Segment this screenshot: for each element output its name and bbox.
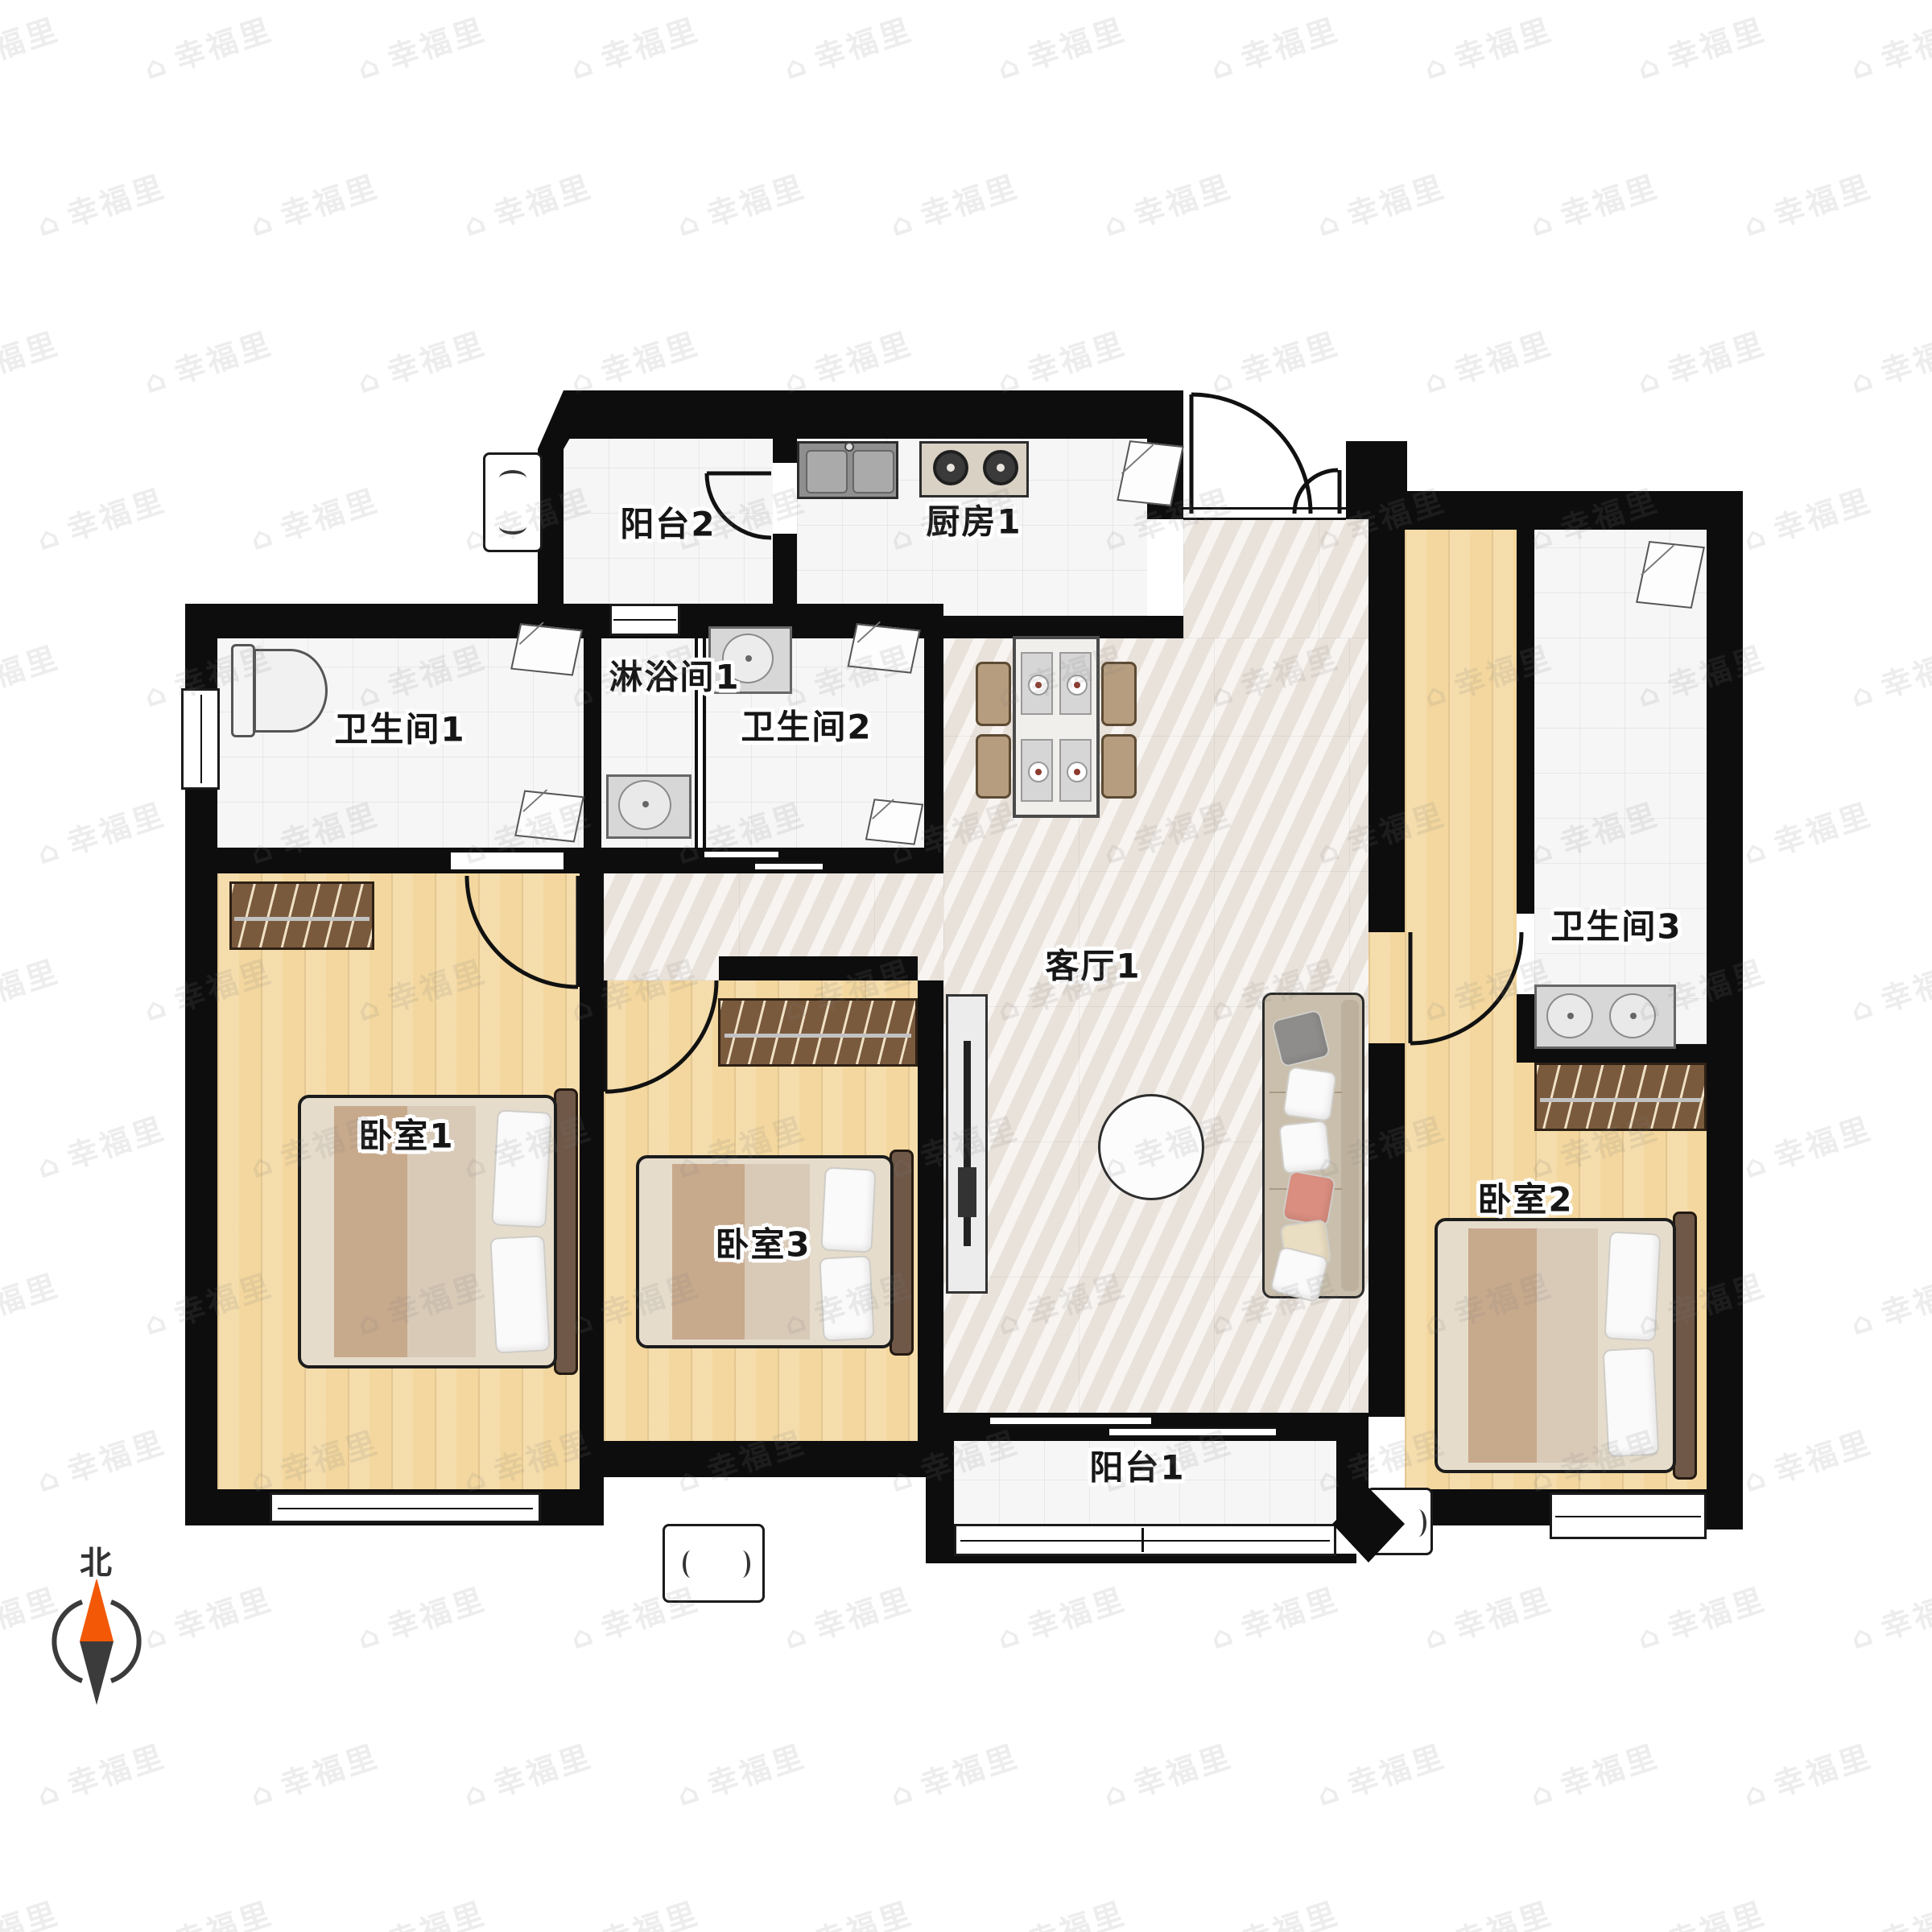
watermark: ⌂幸福里 xyxy=(778,1889,919,1932)
sink-bowl-right xyxy=(852,450,894,493)
watermark: ⌂幸福里 xyxy=(1844,1575,1932,1658)
watermark: ⌂幸福里 xyxy=(671,162,811,246)
watermark: ⌂幸福里 xyxy=(1631,5,1772,89)
dining-chair-4 xyxy=(1101,734,1137,799)
bathroom2-fixture-bottom xyxy=(865,799,924,845)
house-icon: ⌂ xyxy=(993,47,1026,86)
room-label-balcony-2: 阳台2 xyxy=(620,497,716,547)
watermark: ⌂幸福里 xyxy=(671,1732,811,1815)
window-divider xyxy=(1141,1528,1144,1553)
watermark: ⌂幸福里 xyxy=(1844,1261,1932,1344)
watermark: ⌂幸福里 xyxy=(0,1261,64,1344)
watermark: ⌂幸福里 xyxy=(1524,162,1665,246)
bed-pillow xyxy=(819,1255,874,1341)
house-icon: ⌂ xyxy=(460,1774,493,1813)
window-mullion xyxy=(200,695,202,783)
blanket-band xyxy=(1537,1228,1598,1462)
house-icon: ⌂ xyxy=(33,518,66,557)
fixture-line xyxy=(872,799,919,845)
wall-entry-right xyxy=(1346,441,1407,519)
house-icon: ⌂ xyxy=(353,361,386,400)
compass-ring-left xyxy=(54,1602,82,1681)
plate-center xyxy=(1074,682,1080,688)
bed-pillow xyxy=(1604,1231,1662,1341)
house-icon: ⌂ xyxy=(673,1774,706,1813)
watermark: ⌂幸福里 xyxy=(1204,5,1345,89)
house-icon: ⌂ xyxy=(33,832,66,871)
house-icon: ⌂ xyxy=(1740,518,1773,557)
door-gap-bathroom3 xyxy=(1517,914,1534,994)
fixture-line xyxy=(1641,545,1702,605)
fixture-line xyxy=(523,789,578,843)
house-icon: ⌂ xyxy=(1740,1774,1773,1813)
room-label-kitchen-1: 厨房1 xyxy=(926,495,1022,544)
headboard-bedroom2 xyxy=(1673,1212,1697,1480)
house-icon: ⌂ xyxy=(246,1774,279,1813)
vanity-drain-right xyxy=(1630,1013,1637,1019)
house-icon: ⌂ xyxy=(886,204,919,243)
watermark: ⌂幸福里 xyxy=(1418,5,1558,89)
stove-burner-right xyxy=(983,450,1018,485)
house-icon: ⌂ xyxy=(140,989,173,1028)
dining-chair-3 xyxy=(1101,662,1137,726)
watermark: ⌂幸福里 xyxy=(138,319,279,402)
ac-unit-bottom-right xyxy=(1366,1488,1433,1555)
sofa xyxy=(1262,993,1364,1298)
house-icon: ⌂ xyxy=(353,1617,386,1656)
wall-top xyxy=(563,390,1183,439)
watermark: ⌂幸福里 xyxy=(351,1889,492,1932)
watermark: ⌂幸福里 xyxy=(1311,162,1451,246)
watermark: ⌂幸福里 xyxy=(0,5,64,89)
wall-living-bedroom2-lower xyxy=(1368,1043,1405,1417)
watermark: ⌂幸福里 xyxy=(457,162,598,246)
house-icon: ⌂ xyxy=(140,361,173,400)
wall-bedroom3-top xyxy=(719,956,918,980)
compass-ring-right xyxy=(111,1602,139,1681)
watermark: ⌂幸福里 xyxy=(1844,1889,1932,1932)
floor-bedroom-2-doorway xyxy=(1368,932,1405,1043)
dining-chair-2 xyxy=(976,734,1011,799)
house-icon: ⌂ xyxy=(460,204,493,243)
basin-drain xyxy=(642,801,649,807)
house-icon: ⌂ xyxy=(1847,1617,1880,1656)
house-icon: ⌂ xyxy=(1100,1774,1133,1813)
house-icon: ⌂ xyxy=(1740,1460,1773,1499)
balcony1-slider-b xyxy=(1109,1426,1276,1438)
window-bedroom2-bottom xyxy=(1550,1492,1707,1539)
watermark: ⌂幸福里 xyxy=(1204,319,1345,402)
wall-balcony1-right xyxy=(1336,1413,1368,1525)
house-icon: ⌂ xyxy=(246,518,279,557)
watermark: ⌂幸福里 xyxy=(991,5,1132,89)
dining-table xyxy=(1013,636,1100,818)
watermark: ⌂幸福里 xyxy=(0,1889,64,1932)
round-rug xyxy=(1098,1094,1204,1200)
house-icon: ⌂ xyxy=(1207,361,1240,400)
sofa-pillow-white xyxy=(1282,1066,1337,1122)
watermark: ⌂幸福里 xyxy=(564,319,705,402)
bathroom1-fixture-top xyxy=(510,623,583,675)
house-icon: ⌂ xyxy=(1633,47,1666,86)
place-setting xyxy=(1021,739,1053,802)
watermark: ⌂幸福里 xyxy=(1418,1575,1558,1658)
window-mullion xyxy=(278,1508,534,1509)
window-bedroom1-bottom xyxy=(270,1492,541,1523)
tray-drain xyxy=(745,655,752,662)
burner-center xyxy=(997,464,1005,472)
watermark: ⌂幸福里 xyxy=(1418,319,1558,402)
house-icon: ⌂ xyxy=(1207,47,1240,86)
watermark: ⌂幸福里 xyxy=(1097,162,1238,246)
watermark: ⌂幸福里 xyxy=(244,476,385,559)
door-gap-balcony2 xyxy=(773,463,797,534)
window-bathroom1-left xyxy=(181,688,220,790)
watermark: ⌂幸福里 xyxy=(564,1889,705,1932)
place-setting xyxy=(1059,739,1092,802)
house-icon: ⌂ xyxy=(33,1774,66,1813)
house-icon: ⌂ xyxy=(1633,1617,1666,1656)
wall-bathroom1-right xyxy=(584,620,601,848)
house-icon: ⌂ xyxy=(1847,675,1880,714)
floor-plan-canvas: 阳台2 厨房1 卫生间1 淋浴间1 卫生间2 客厅1 卫生间3 卧室1 卧室3 … xyxy=(0,0,1932,1932)
fixture-line xyxy=(857,621,913,676)
room-label-bathroom-2: 卫生间2 xyxy=(741,700,872,749)
house-icon: ⌂ xyxy=(33,1460,66,1499)
room-label-bedroom-2: 卧室2 xyxy=(1477,1173,1573,1222)
ac-bracket xyxy=(1410,1509,1426,1537)
watermark: ⌂幸福里 xyxy=(1737,476,1878,559)
watermark: ⌂幸福里 xyxy=(0,947,64,1030)
watermark: ⌂幸福里 xyxy=(1844,633,1932,716)
house-icon: ⌂ xyxy=(246,204,279,243)
kitchen-stove xyxy=(919,441,1029,497)
wall-living-bedroom2-upper xyxy=(1368,519,1405,932)
window-balcony1-bottom xyxy=(954,1524,1336,1556)
wall-bedroom1-right xyxy=(580,848,604,1525)
watermark: ⌂幸福里 xyxy=(351,5,492,89)
house-icon: ⌂ xyxy=(1740,1146,1773,1185)
plate-center xyxy=(1035,769,1042,775)
house-icon: ⌂ xyxy=(1847,361,1880,400)
house-icon: ⌂ xyxy=(1847,47,1880,86)
watermark: ⌂幸福里 xyxy=(457,1732,598,1815)
house-icon: ⌂ xyxy=(1847,1303,1880,1342)
wardrobe-bedroom3 xyxy=(718,998,918,1067)
bed-pillow xyxy=(820,1166,876,1253)
room-label-balcony-1: 阳台1 xyxy=(1089,1441,1185,1490)
room-label-bedroom-3: 卧室3 xyxy=(715,1218,811,1267)
wardrobe-rod xyxy=(1540,1098,1701,1102)
wardrobe-bedroom2 xyxy=(1534,1063,1707,1131)
watermark: ⌂幸福里 xyxy=(1844,5,1932,89)
wall-bathroom2-right xyxy=(924,620,943,873)
sofa-back xyxy=(1341,1000,1359,1291)
toilet-tank xyxy=(231,644,255,737)
house-icon: ⌂ xyxy=(140,1617,173,1656)
sofa-pillow-red xyxy=(1282,1170,1336,1227)
tv-mount xyxy=(958,1167,976,1217)
sink-faucet xyxy=(844,442,854,452)
watermark: ⌂幸福里 xyxy=(884,1732,1025,1815)
watermark: ⌂幸福里 xyxy=(138,5,279,89)
bathroom3-vanity xyxy=(1534,985,1676,1049)
room-label-bathroom-3: 卫生间3 xyxy=(1550,900,1682,949)
wall-bedroom2-top xyxy=(1405,491,1743,530)
room-label-living-1: 客厅1 xyxy=(1045,939,1141,989)
house-icon: ⌂ xyxy=(1207,1617,1240,1656)
house-icon: ⌂ xyxy=(567,1617,600,1656)
bed-pillow xyxy=(1603,1347,1660,1457)
house-icon: ⌂ xyxy=(1420,47,1453,86)
bed-pillow xyxy=(491,1109,551,1228)
watermark: ⌂幸福里 xyxy=(244,162,385,246)
house-icon: ⌂ xyxy=(140,47,173,86)
wall-bathroom3-left-lower xyxy=(1517,994,1534,1044)
watermark: ⌂幸福里 xyxy=(1631,1575,1772,1658)
place-setting xyxy=(1059,652,1092,715)
watermark: ⌂幸福里 xyxy=(1204,1889,1345,1932)
watermark: ⌂幸福里 xyxy=(1418,1889,1558,1932)
house-icon: ⌂ xyxy=(1847,989,1880,1028)
window-mullion xyxy=(1555,1516,1701,1517)
stove-burner-left xyxy=(933,450,968,485)
cabinet-line xyxy=(1121,444,1181,502)
balcony1-slider-a xyxy=(990,1415,1151,1426)
watermark: ⌂幸福里 xyxy=(138,1575,279,1658)
shower1-door-sill xyxy=(704,849,778,860)
floor-entry xyxy=(1183,519,1368,638)
house-icon: ⌂ xyxy=(993,1617,1026,1656)
house-icon: ⌂ xyxy=(1633,361,1666,400)
ac-bracket xyxy=(499,470,526,486)
house-icon: ⌂ xyxy=(353,47,386,86)
house-icon: ⌂ xyxy=(886,1774,919,1813)
ac-unit-bottom-center xyxy=(663,1524,765,1603)
compass-needle-south xyxy=(80,1641,114,1705)
watermark: ⌂幸福里 xyxy=(991,1889,1132,1932)
sink-bowl-left xyxy=(806,450,848,493)
dining-chair-1 xyxy=(976,662,1011,726)
window-mullion xyxy=(960,1540,1331,1542)
entry-door-sill xyxy=(1183,507,1346,520)
ac-bracket xyxy=(1380,1509,1396,1537)
fixture-line xyxy=(519,622,575,678)
ac-unit-top-left xyxy=(483,452,543,552)
watermark: ⌂幸福里 xyxy=(778,5,919,89)
house-icon: ⌂ xyxy=(140,1303,173,1342)
house-icon: ⌂ xyxy=(567,47,600,86)
house-icon: ⌂ xyxy=(780,1617,813,1656)
room-label-bathroom-1: 卫生间1 xyxy=(334,703,465,752)
house-icon: ⌂ xyxy=(673,204,706,243)
watermark: ⌂幸福里 xyxy=(778,1575,919,1658)
watermark: ⌂幸福里 xyxy=(138,1889,279,1932)
kitchen-sink xyxy=(797,441,898,499)
wardrobe-rod xyxy=(234,917,369,921)
house-icon: ⌂ xyxy=(1420,361,1453,400)
bed-pillow xyxy=(489,1235,550,1353)
compass-north-label: 北 xyxy=(80,1537,114,1583)
wardrobe-bedroom1 xyxy=(229,881,374,950)
watermark: ⌂幸福里 xyxy=(1737,1418,1878,1501)
wall-bedroom3-right xyxy=(918,980,943,1441)
house-icon: ⌂ xyxy=(1740,832,1773,871)
wardrobe-rod xyxy=(724,1034,911,1038)
watermark: ⌂幸福里 xyxy=(1097,1732,1238,1815)
watermark: ⌂幸福里 xyxy=(31,1418,171,1501)
house-icon: ⌂ xyxy=(140,675,173,714)
watermark: ⌂幸福里 xyxy=(31,790,171,873)
shower1-washbasin xyxy=(606,774,691,839)
door-entry-large xyxy=(1191,394,1311,514)
house-icon: ⌂ xyxy=(1740,204,1773,243)
ac-bracket xyxy=(499,518,526,535)
toilet-bowl xyxy=(254,649,328,733)
watermark: ⌂幸福里 xyxy=(1631,319,1772,402)
watermark: ⌂幸福里 xyxy=(0,1575,64,1658)
watermark: ⌂幸福里 xyxy=(991,1575,1132,1658)
bathroom2-fixture-top xyxy=(847,623,920,673)
watermark: ⌂幸福里 xyxy=(1844,319,1932,402)
compass xyxy=(54,1578,138,1705)
watermark: ⌂幸福里 xyxy=(0,319,64,402)
watermark: ⌂幸福里 xyxy=(351,1575,492,1658)
plate-center xyxy=(1074,769,1080,775)
headboard-bedroom1 xyxy=(554,1088,578,1375)
watermark: ⌂幸福里 xyxy=(1311,1732,1451,1815)
bathroom1-fixture-bottom xyxy=(514,791,584,843)
watermark: ⌂幸福里 xyxy=(244,1732,385,1815)
place-setting xyxy=(1021,652,1053,715)
burner-center xyxy=(947,464,955,472)
house-icon: ⌂ xyxy=(1313,1774,1346,1813)
watermark: ⌂幸福里 xyxy=(31,162,171,246)
vanity-drain-left xyxy=(1567,1013,1574,1019)
watermark: ⌂幸福里 xyxy=(1631,1889,1772,1932)
ac-bracket xyxy=(734,1550,750,1578)
house-icon: ⌂ xyxy=(33,1146,66,1185)
watermark: ⌂幸福里 xyxy=(778,319,919,402)
house-icon: ⌂ xyxy=(1420,1617,1453,1656)
watermark: ⌂幸福里 xyxy=(1737,1732,1878,1815)
watermark: ⌂幸福里 xyxy=(1204,1575,1345,1658)
watermark: ⌂幸福里 xyxy=(0,633,64,716)
house-icon: ⌂ xyxy=(33,204,66,243)
window-shower-top xyxy=(609,604,680,636)
house-icon: ⌂ xyxy=(1313,204,1346,243)
watermark: ⌂幸福里 xyxy=(884,162,1025,246)
watermark: ⌂幸福里 xyxy=(1844,947,1932,1030)
compass-needle-north xyxy=(80,1578,114,1641)
wall-kitchen-bottom xyxy=(773,616,1183,638)
wall-outer-right xyxy=(1707,491,1743,1529)
house-icon: ⌂ xyxy=(1100,204,1133,243)
watermark: ⌂幸福里 xyxy=(1737,1104,1878,1187)
watermark: ⌂幸福里 xyxy=(564,5,705,89)
watermark: ⌂幸福里 xyxy=(351,319,492,402)
wall-bathroom3-left-upper xyxy=(1517,530,1534,914)
bed-bedroom2 xyxy=(1435,1218,1676,1473)
house-icon: ⌂ xyxy=(780,47,813,86)
window-mullion xyxy=(613,619,677,621)
bathroom1-door-sill xyxy=(451,850,563,872)
wall-bedroom3-bottom xyxy=(580,1441,926,1477)
watermark: ⌂幸福里 xyxy=(31,1732,171,1815)
ac-bracket xyxy=(683,1550,699,1578)
house-icon: ⌂ xyxy=(1526,1774,1559,1813)
blanket-band xyxy=(1468,1228,1537,1462)
wall-bathrooms-bottom xyxy=(197,848,943,873)
watermark: ⌂幸福里 xyxy=(991,319,1132,402)
room-label-bedroom-1: 卧室1 xyxy=(358,1109,454,1158)
watermark: ⌂幸福里 xyxy=(1737,162,1878,246)
house-icon: ⌂ xyxy=(1526,204,1559,243)
room-label-shower-1: 淋浴间1 xyxy=(609,650,740,700)
tv-stand xyxy=(946,994,988,1294)
watermark: ⌂幸福里 xyxy=(31,476,171,559)
watermark: ⌂幸福里 xyxy=(1737,790,1878,873)
plate-center xyxy=(1035,682,1042,688)
bathroom2-door-sill xyxy=(755,861,823,872)
sofa-pillow-white xyxy=(1278,1120,1331,1174)
sofa-pillow-gray xyxy=(1271,1009,1331,1067)
watermark: ⌂幸福里 xyxy=(31,1104,171,1187)
watermark: ⌂幸福里 xyxy=(1524,1732,1665,1815)
